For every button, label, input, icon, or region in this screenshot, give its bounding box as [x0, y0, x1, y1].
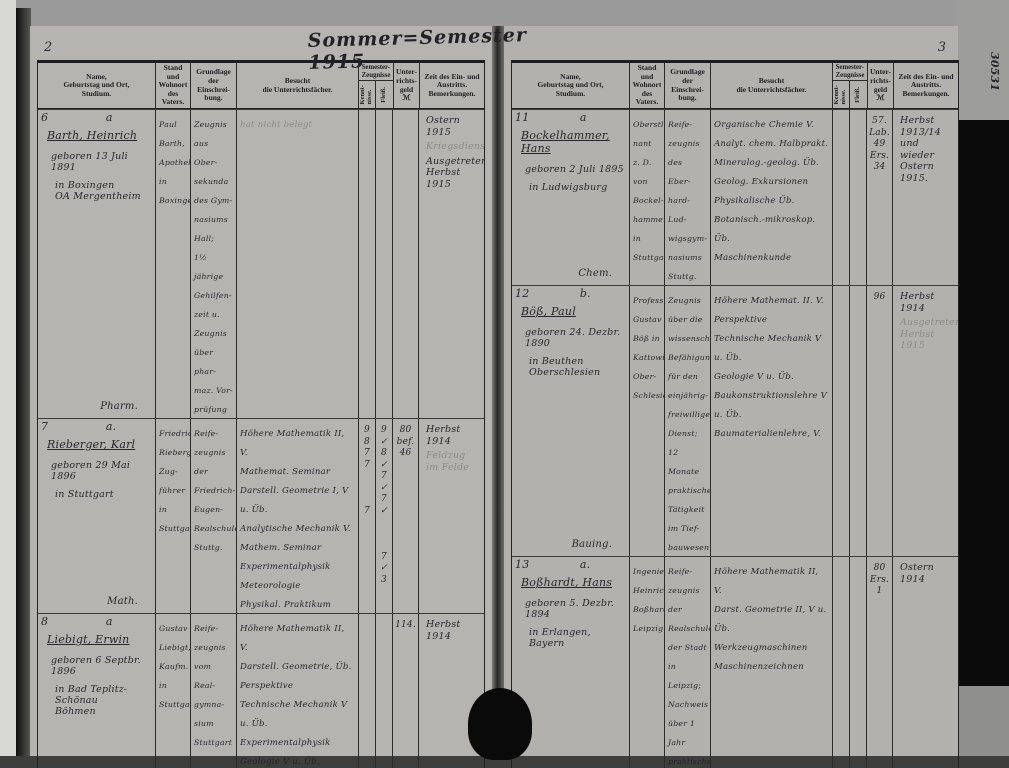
enrollment-basis: Reife- zeugnis der Friedrich- Eugen- Rea… — [194, 429, 237, 552]
father-info: Professor Gustav Böß in Kattowitz Ober- … — [633, 296, 665, 400]
column-header-diligence: Fleiß. — [381, 87, 388, 103]
register-table-left: Name, Geburtstag und Ort, Studium. Stand… — [37, 60, 485, 768]
study-field: Pharm. — [41, 401, 152, 412]
entry-exit-time: Ostern 1915 — [426, 115, 481, 138]
father-info: Ingenieur Heinrich Boßhardt Leipzig — [633, 567, 665, 633]
column-header-time: Zeit des Ein- und Austritts. Bemerkungen… — [894, 63, 958, 108]
entry-letter: a. — [580, 558, 590, 571]
table-header-right: Name, Geburtstag und Ort, Studium. Stand… — [512, 63, 958, 109]
entry-number: 7 — [41, 420, 48, 433]
column-header-father: Stand und Wohnort des Vaters. — [630, 63, 665, 108]
entry-exit-time: Herbst 1914 — [426, 424, 481, 447]
marks-diligence: 9 ✓ 8 ✓ 7 ✓ 7 ✓ 7 ✓ 3 — [377, 425, 391, 586]
birth-place: in Erlangen, Bayern — [529, 627, 626, 649]
subjects-attended: Höhere Mathematik II, V. Mathemat. Semin… — [240, 429, 351, 610]
entry-row: 7 a. Rieberger, Karl geboren 29 Mai 1896… — [38, 418, 484, 613]
column-header-knowledge: Kennt- nisse. — [834, 85, 848, 105]
enrollment-basis: Zeugnis aus Ober- sekunda des Gym- nasiu… — [194, 120, 233, 414]
marks-knowledge: 9 8 7 7 7 — [360, 425, 374, 517]
column-header-diligence: Fleiß. — [855, 87, 862, 103]
birth-date: geboren 5. Dezbr. 1894 — [525, 598, 626, 620]
student-name: Liebigt, Erwin — [47, 633, 152, 646]
entry-letter: a. — [106, 420, 116, 433]
birth-date: geboren 24. Dezbr. 1890 — [525, 327, 626, 349]
entry-number: 6 — [41, 111, 48, 124]
entry-exit-time: Herbst 1914 — [426, 619, 481, 642]
student-name: Bockelhammer, Hans — [521, 129, 626, 155]
pencil-note: Kriegsdienst — [426, 141, 481, 153]
entry-letter: a — [106, 111, 113, 124]
scanned-ledger-spread: 2 Name, Geburtstag und Ort, Studium. Sta… — [0, 0, 1009, 768]
tuition-fee: 96 — [868, 292, 891, 304]
column-header-basis: Grundlage der Einschrei- bung. — [665, 63, 711, 108]
birth-date: geboren 2 Juli 1895 — [525, 164, 626, 175]
column-header-subjects: Besucht die Unterrichtsfächer. — [711, 63, 833, 108]
ledger-page-right: 3 Name, Geburtstag und Ort, Studium. Sta… — [504, 26, 958, 756]
register-table-right: Name, Geburtstag und Ort, Studium. Stand… — [511, 60, 959, 768]
entry-row: 6 a Barth, Heinrich geboren 13 Juli 1891… — [38, 109, 484, 418]
student-name: Boßhardt, Hans — [521, 576, 626, 589]
exit-note: Ausgetreten Herbst 1915 — [426, 156, 481, 191]
entry-number: 8 — [41, 615, 48, 628]
entry-letter: a — [106, 615, 113, 628]
scan-background-top — [0, 0, 1009, 26]
page-number-right: 3 — [938, 40, 946, 55]
enrollment-basis: Zeugnis über die wissenschaftl. Befähigu… — [668, 296, 711, 552]
tuition-fee: 114. — [394, 620, 417, 632]
birth-place: in Beuthen Oberschlesien — [529, 356, 626, 378]
tuition-fee: 80 bef. 46 — [394, 425, 417, 460]
entry-number: 12 — [515, 287, 529, 300]
father-info: Friedrich Rieberger, Zug- führer in Stut… — [159, 429, 191, 533]
column-header-knowledge: Kennt- nisse. — [360, 85, 374, 105]
entry-letter: b. — [580, 287, 591, 300]
study-field: Math. — [41, 596, 152, 607]
entry-number: 11 — [515, 111, 529, 124]
pencil-note: Ausgetreten Herbst 1915 — [900, 317, 955, 352]
student-name: Rieberger, Karl — [47, 438, 152, 451]
birth-date: geboren 13 Juli 1891 — [51, 151, 152, 173]
father-info: Paul Barth, Apotheker in Boxingen — [159, 120, 191, 205]
column-header-name: Name, Geburtstag und Ort, Studium. — [512, 63, 630, 108]
column-header-semester-certificates: Semester- Zeugnisse Kennt- nisse. Fleiß. — [833, 63, 868, 108]
student-name: Barth, Heinrich — [47, 129, 152, 142]
tuition-fee: 57. Lab. 49 Ers. 34 — [868, 116, 891, 174]
subjects-attended: Höhere Mathematik II, V. Darst. Geometri… — [714, 567, 826, 672]
binding-shadow — [468, 688, 532, 760]
birth-place: in Stuttgart — [55, 489, 152, 500]
entry-number: 13 — [515, 558, 529, 571]
entry-row: 13 a. Boßhardt, Hans geboren 5. Dezbr. 1… — [512, 556, 958, 768]
subjects-attended: hat nicht belegt — [240, 120, 312, 130]
subjects-attended: Höhere Mathematik II, V. Darstell. Geome… — [240, 624, 355, 768]
study-field: Chem. — [515, 268, 626, 279]
student-name: Böß, Paul — [521, 305, 626, 318]
semester-title: Sommer=Semester 1915 — [307, 24, 528, 74]
book-gutter — [492, 26, 504, 756]
column-header-tuition: Unter- richts- geld ℳ — [868, 63, 894, 108]
entry-row: 11 a Bockelhammer, Hans geboren 2 Juli 1… — [512, 109, 958, 285]
father-info: Gustav Liebigt, Kaufm. in Stuttgart — [159, 624, 191, 709]
entry-exit-time: Ostern 1914 — [900, 562, 955, 585]
column-header-name: Name, Geburtstag und Ort, Studium. — [38, 63, 156, 108]
ledger-page-left: 2 Name, Geburtstag und Ort, Studium. Sta… — [30, 26, 492, 756]
book-edge-shadow — [16, 8, 31, 760]
entry-exit-time: Herbst 1914 — [900, 291, 955, 314]
column-header-basis: Grundlage der Einschrei- bung. — [191, 63, 237, 108]
enrollment-basis: Reife- zeugnis vom Real- gymna- sium Stu… — [194, 624, 232, 747]
column-header-father: Stand und Wohnort des Vaters. — [156, 63, 191, 108]
tuition-fee: 80 Ers. 1 — [868, 563, 891, 598]
enrollment-basis: Reife- zeugnis der Realschule der Stadt … — [668, 567, 711, 768]
page-number-left: 2 — [44, 40, 52, 55]
birth-place: in Bad Teplitz-Schönau Böhmen — [55, 684, 152, 717]
entry-row: 8 a Liebigt, Erwin geboren 6 Septbr. 189… — [38, 613, 484, 768]
birth-date: geboren 6 Septbr. 1896 — [51, 655, 152, 677]
birth-date: geboren 29 Mai 1896 — [51, 460, 152, 482]
father-info: Oberstleut- nant z. D. von Bockel- hamme… — [633, 120, 665, 262]
scan-corner-top-right — [957, 0, 1009, 120]
entry-letter: a — [580, 111, 587, 124]
scan-background-left — [0, 0, 16, 768]
pencil-note: Feldzug im Felde — [426, 450, 481, 473]
birth-place: in Boxingen OA Mergentheim — [55, 180, 152, 202]
subjects-attended: Organische Chemie V. Analyt. chem. Halbp… — [714, 120, 828, 263]
subjects-attended: Höhere Mathemat. II. V. Perspektive Tech… — [714, 296, 827, 439]
enrollment-basis: Reife- zeugnis des Eber- hard-Lud- wigsg… — [668, 120, 707, 281]
spine-number: 30531 — [988, 52, 1001, 91]
study-field: Bauing. — [515, 539, 626, 550]
entry-exit-time: Herbst 1913/14 und wieder Ostern 1915. — [900, 115, 955, 184]
entry-row: 12 b. Böß, Paul geboren 24. Dezbr. 1890 … — [512, 285, 958, 556]
birth-place: in Ludwigsburg — [529, 182, 626, 193]
